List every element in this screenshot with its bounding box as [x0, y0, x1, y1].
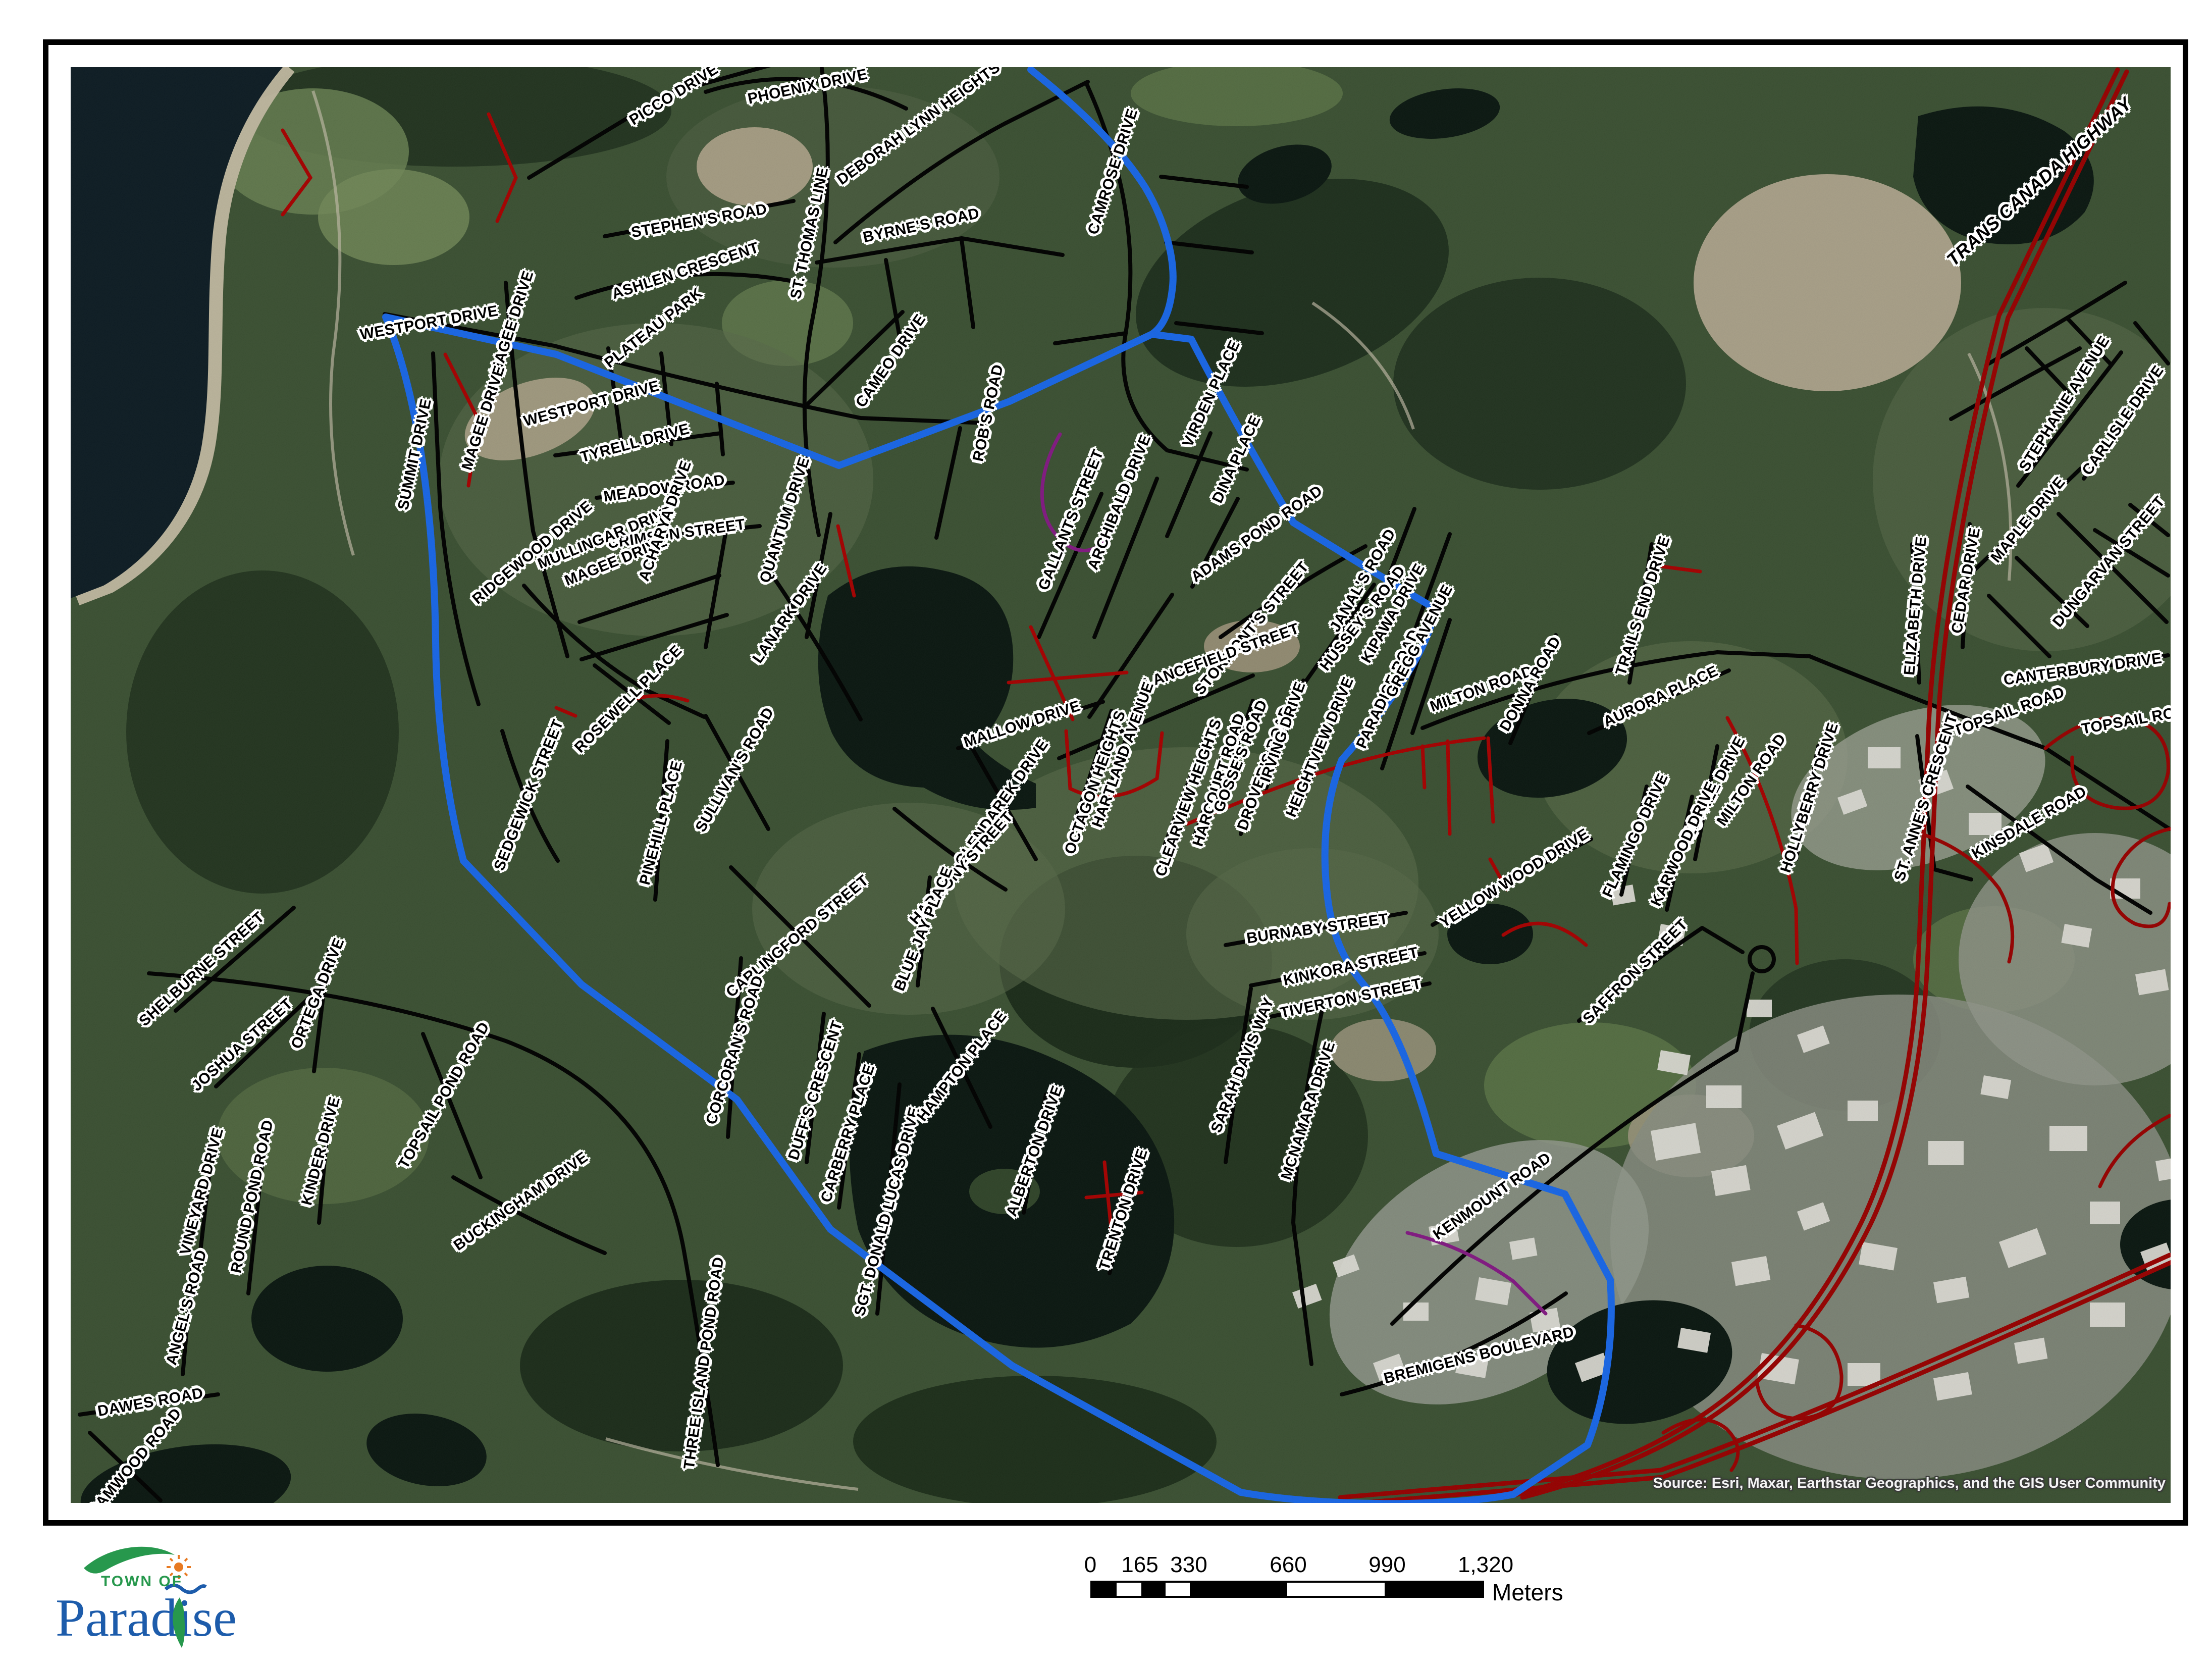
- street-label: MAGEE DRIVE: [488, 269, 538, 377]
- scalebar-segment: [1092, 1583, 1117, 1596]
- street-label: ROSEWELL PLACE: [571, 642, 686, 757]
- street-label: BLUE JAY PLACE: [891, 864, 957, 994]
- street-label: BURNABY STREET: [1245, 910, 1389, 947]
- imagery-attribution: Source: Esri, Maxar, Earthstar Geographi…: [1653, 1475, 2166, 1492]
- street-label: CAMEO DRIVE: [853, 311, 929, 410]
- street-label: VIRDEN PLACE: [1179, 338, 1244, 450]
- scalebar-segment: [1166, 1583, 1190, 1596]
- street-label: ANGEL'S ROAD: [163, 1248, 210, 1367]
- scalebar-tick: 990: [1368, 1552, 1405, 1578]
- street-label: DINA PLACE: [1209, 413, 1265, 506]
- logo-swoosh: [84, 1547, 175, 1574]
- street-label: WESTPORT DRIVE: [522, 378, 661, 431]
- street-label: ROB'S ROAD: [970, 363, 1007, 463]
- street-label: GALLANTS STREET: [1035, 447, 1108, 593]
- street-label: JOSHUA STREET: [188, 995, 296, 1095]
- street-label: ORTEGA DRIVE: [288, 935, 348, 1051]
- street-label: ST. THOMAS LINE: [787, 166, 832, 300]
- street-label: QUANTUM DRIVE: [757, 455, 814, 585]
- street-label: BALSAMWOOD ROAD: [71, 1405, 185, 1503]
- street-label: LANCEFIELD STREET: [1141, 620, 1301, 692]
- street-label: TYRELL DRIVE: [578, 421, 691, 466]
- street-label: CEDAR DRIVE: [1948, 527, 1984, 635]
- street-label: BREMIGENS BOULEVARD: [1382, 1324, 1576, 1388]
- street-label: THREE ISLAND POND ROAD: [681, 1256, 728, 1471]
- street-label: ELIZABETH DRIVE: [1901, 536, 1930, 676]
- street-label: TOPSAIL ROAD: [1951, 684, 2067, 740]
- street-label: KINDER DRIVE: [298, 1095, 344, 1207]
- street-label: ST. ANNE'S CRESCENT: [1891, 712, 1961, 883]
- street-label: TOPSAIL ROAD: [2080, 701, 2171, 738]
- street-label: MAPLE DRIVE: [1987, 474, 2069, 566]
- street-label: CANTERBURY DRIVE: [2003, 650, 2163, 689]
- street-label: CARLISLE DRIVE: [2079, 362, 2167, 479]
- street-label: ALBERTON DRIVE: [1003, 1083, 1066, 1219]
- street-label: SGT. DONALD LUCAS DRIVE: [851, 1106, 923, 1318]
- street-label: MAGEE DRIVE: [459, 363, 509, 472]
- street-labels-layer: PICCO DRIVEPHOENIX DRIVEDEBORAH LYNN HEI…: [71, 67, 2171, 1503]
- logo-paradise: Paradise: [56, 1588, 236, 1647]
- street-label: CAMROSE DRIVE: [1085, 107, 1142, 237]
- street-label: KENMOUNT ROAD: [1430, 1150, 1554, 1243]
- street-label: SUMMIT DRIVE: [395, 397, 435, 512]
- scalebar-unit: Meters: [1492, 1579, 1563, 1606]
- scalebar-tick: 330: [1170, 1552, 1207, 1578]
- street-label: SAFFRON STREET: [1579, 916, 1691, 1027]
- scalebar-tick: 165: [1121, 1552, 1158, 1578]
- street-label: HAMPTON PLACE: [914, 1008, 1011, 1125]
- scalebar-tick: 0: [1084, 1552, 1096, 1578]
- scalebar: 01653306609901,320 Meters: [1080, 1552, 1636, 1618]
- town-of-paradise-logo: TOWN OF Paradise: [44, 1541, 236, 1657]
- logo-town-of: TOWN OF: [101, 1573, 183, 1590]
- street-label: TOPSAIL POND ROAD: [395, 1019, 493, 1172]
- street-label: PICCO DRIVE: [626, 67, 721, 129]
- street-label: DEBORAH LYNN HEIGHTS: [834, 67, 1004, 189]
- street-label: CARLINGFORD STREET: [723, 872, 872, 1001]
- street-label: SULLIVAN'S ROAD: [693, 705, 778, 836]
- scalebar-tick: 1,320: [1458, 1552, 1513, 1578]
- street-label: DUNGARVAN STREET: [2049, 493, 2169, 631]
- street-label: MCNAMARA DRIVE: [1278, 1039, 1339, 1182]
- scalebar-segment: [1287, 1583, 1385, 1596]
- map-document-page: PICCO DRIVEPHOENIX DRIVEDEBORAH LYNN HEI…: [0, 0, 2212, 1666]
- street-label: MALLOW DRIVE: [962, 698, 1083, 752]
- street-label: TRENTON DRIVE: [1096, 1147, 1151, 1272]
- street-label: YELLOW WOOD DRIVE: [1437, 825, 1592, 931]
- street-label: VINEYARD DRIVE: [177, 1126, 227, 1257]
- scalebar-segment: [1141, 1583, 1166, 1596]
- street-label: DAWES ROAD: [96, 1385, 204, 1420]
- scalebar-bar: [1090, 1581, 1484, 1598]
- street-label: TRAILS END DRIVE: [1612, 534, 1673, 678]
- street-label: TRANS CANADA HIGHWAY: [1942, 93, 2136, 270]
- scalebar-tick: 660: [1270, 1552, 1306, 1578]
- logo-graphic: TOWN OF Paradise: [44, 1541, 236, 1657]
- street-label: SEDGEWICK STREET: [491, 717, 567, 873]
- street-label: SARAH DAVIS WAY: [1208, 995, 1278, 1135]
- street-label: PHOENIX DRIVE: [746, 67, 869, 108]
- street-label: KINSDALE ROAD: [1969, 783, 2089, 863]
- street-label: BYRNE'S ROAD: [862, 205, 981, 246]
- scalebar-segment: [1190, 1583, 1287, 1596]
- street-label: BUCKINGHAM DRIVE: [451, 1149, 592, 1254]
- satellite-map: PICCO DRIVEPHOENIX DRIVEDEBORAH LYNN HEI…: [71, 67, 2171, 1503]
- street-label: PINEHILL PLACE: [637, 759, 686, 887]
- street-label: STEPHEN'S ROAD: [630, 201, 768, 242]
- street-label: SHELBURNE STREET: [136, 909, 268, 1030]
- street-label: ROUND POND ROAD: [228, 1118, 277, 1274]
- scalebar-segment: [1385, 1583, 1482, 1596]
- scalebar-segment: [1117, 1583, 1141, 1596]
- street-label: WESTPORT DRIVE: [359, 302, 500, 344]
